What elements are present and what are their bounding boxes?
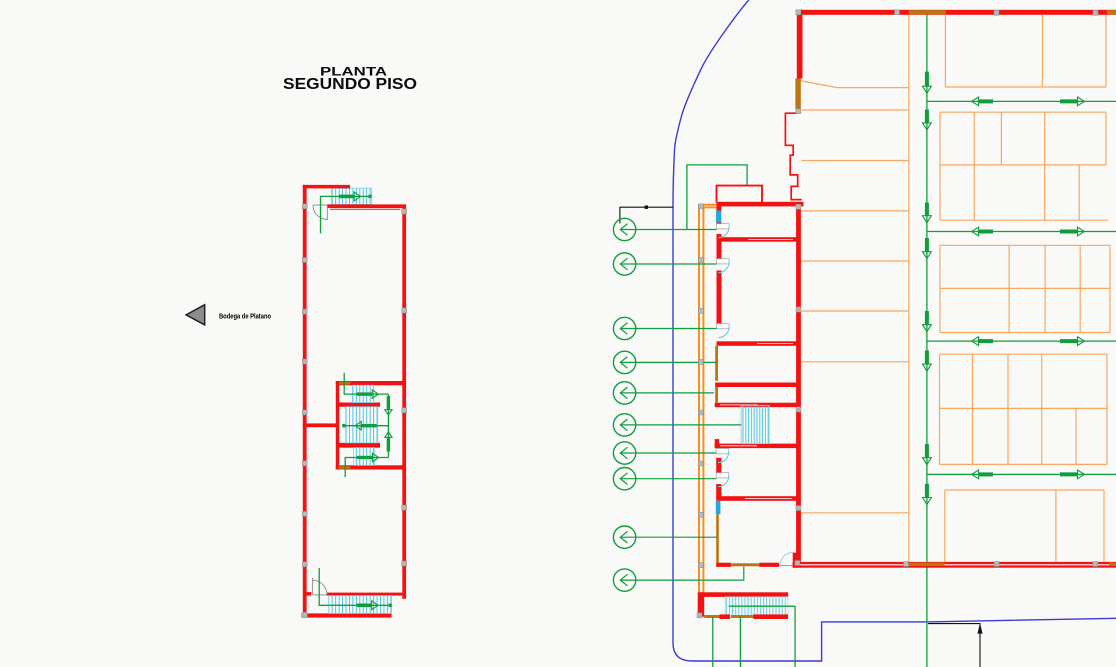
svg-text:SEGUNDO PISO: SEGUNDO PISO bbox=[283, 76, 417, 93]
svg-text:Bodega de Platano: Bodega de Platano bbox=[219, 311, 271, 320]
